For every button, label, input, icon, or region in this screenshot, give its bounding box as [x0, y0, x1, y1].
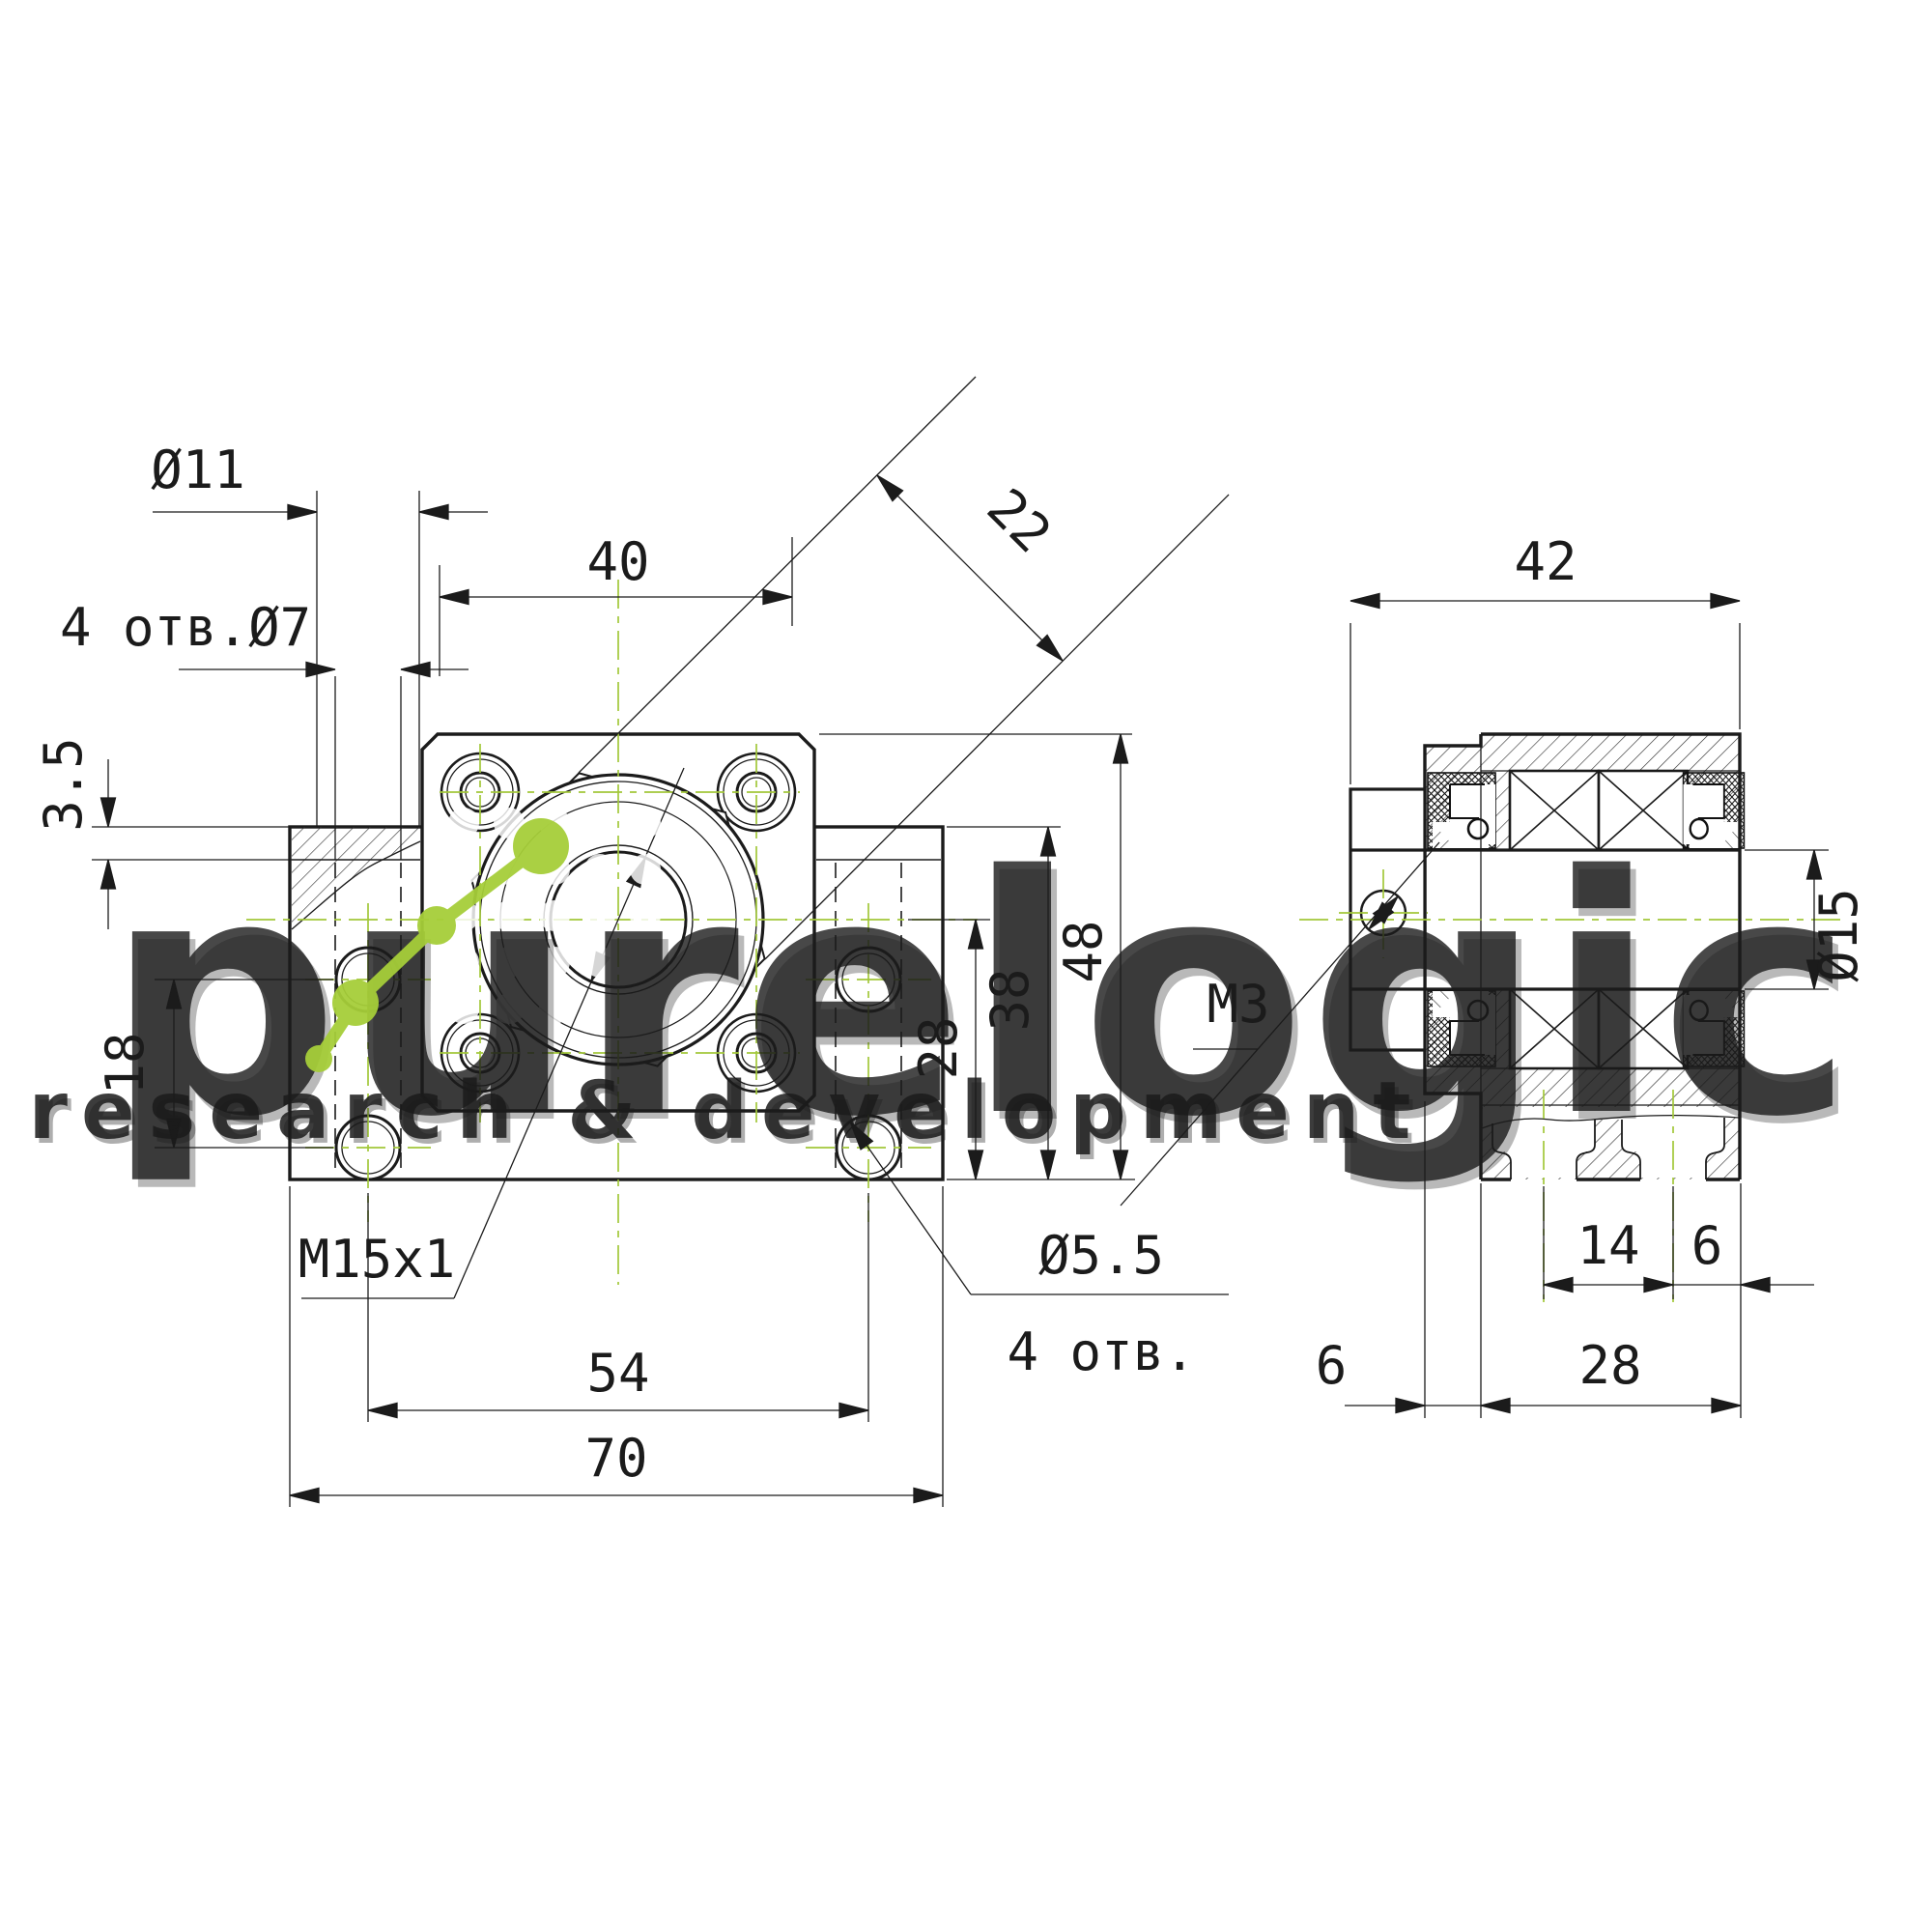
dim-label-6a: 6	[1691, 1215, 1723, 1276]
dim-label-thread: M15x1	[298, 1229, 456, 1290]
dim-label-holes7: 4 отв.Ø7	[60, 597, 311, 658]
dim-label-42: 42	[1514, 531, 1577, 592]
dim-label-70: 70	[584, 1428, 647, 1489]
dim-label-d11: Ø11	[151, 440, 245, 500]
dim-label-14: 14	[1577, 1215, 1639, 1276]
dim-label-22: 22	[976, 477, 1064, 565]
watermark-tagline-text: research & development	[29, 1065, 1425, 1157]
dim-label-d55: Ø5.5	[1038, 1225, 1164, 1286]
drawing-page: Ø11 4 отв.Ø7 40 22 3.5 18 M15x1 54 70 28…	[0, 0, 1932, 1932]
dim-label-holes4: 4 отв.	[1007, 1321, 1195, 1382]
watermark: purelogic purelogic research & developme…	[29, 807, 1862, 1197]
dim-label-28b: 28	[1578, 1335, 1641, 1396]
technical-drawing: Ø11 4 отв.Ø7 40 22 3.5 18 M15x1 54 70 28…	[0, 0, 1932, 1932]
dim-label-54: 54	[586, 1343, 649, 1404]
dim-label-6b: 6	[1316, 1335, 1348, 1396]
dim-label-40: 40	[586, 531, 649, 592]
dim-label-35: 3.5	[33, 737, 94, 832]
